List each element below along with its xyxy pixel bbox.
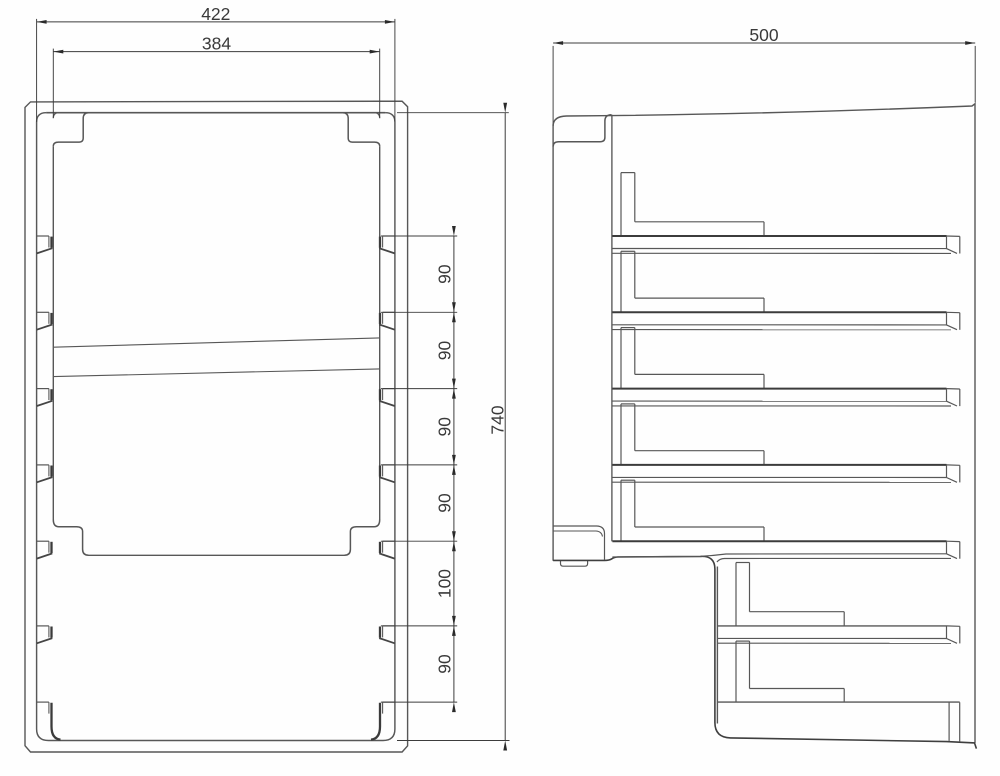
svg-text:740: 740 [487,405,507,434]
svg-text:90: 90 [434,264,454,284]
svg-text:90: 90 [434,417,454,437]
svg-text:100: 100 [434,569,454,598]
svg-text:422: 422 [201,4,230,24]
svg-text:384: 384 [202,33,231,53]
svg-text:90: 90 [434,493,454,513]
svg-text:90: 90 [434,654,454,674]
svg-text:500: 500 [749,25,778,45]
svg-text:90: 90 [434,340,454,360]
